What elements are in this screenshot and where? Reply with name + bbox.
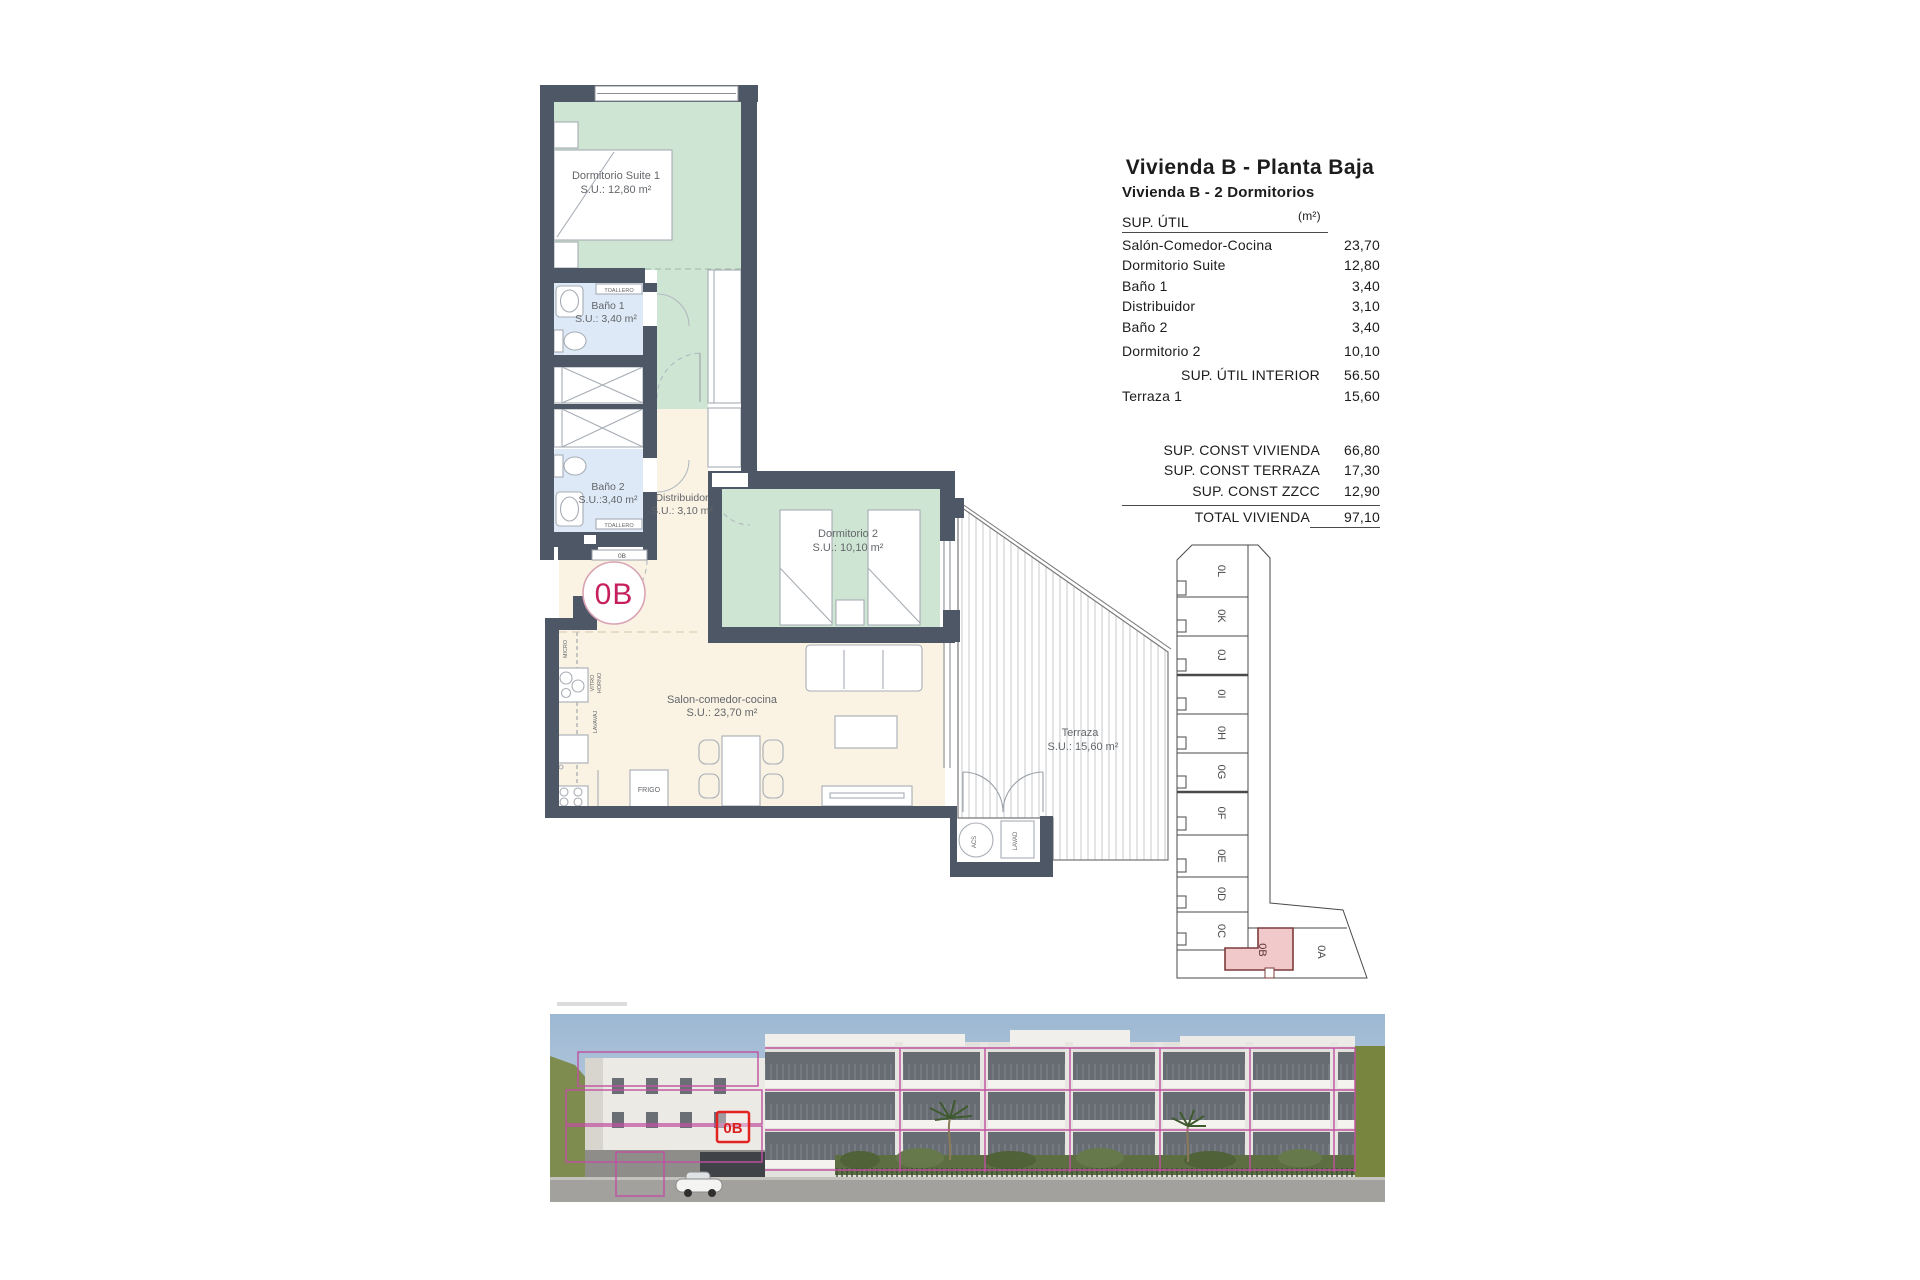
sofa: [806, 645, 922, 691]
room-area-label: S.U.: 3,10 m²: [651, 505, 713, 517]
room-label: Terraza: [1062, 727, 1100, 739]
table-row: Dormitorio Suite 12,80: [1122, 257, 1380, 277]
closet: [708, 270, 741, 403]
door-gap: [643, 292, 657, 326]
row-label: Dormitorio 2: [1122, 343, 1201, 359]
wall: [540, 85, 554, 560]
coffee-table: [835, 716, 897, 748]
row-value: 17,30: [1320, 462, 1380, 478]
page-subtitle: Vivienda B - 2 Dormitorios: [1122, 184, 1384, 201]
render-roof-step: [1180, 1036, 1355, 1046]
useful-area-table: SUP. ÚTIL (m²) Salón-Comedor-Cocina 23,7…: [1122, 214, 1380, 408]
table-row: Distribuidor 3,10: [1122, 298, 1380, 318]
room-label: Baño 2: [591, 481, 624, 493]
table-row: Dormitorio 2 10,10: [1122, 343, 1380, 363]
fixture-label: VITRO: [590, 674, 596, 692]
row-label: TOTAL VIVIENDA: [1195, 509, 1310, 525]
living-room-mid: [657, 545, 708, 806]
keyplan-unit-label: 0H: [1215, 726, 1227, 740]
row-label: SUP. CONST TERRAZA: [1164, 462, 1320, 478]
table-header-unit: (m²): [1298, 209, 1321, 223]
closet: [708, 408, 741, 467]
render-curb: [550, 1177, 1385, 1180]
row-value: 97,10: [1310, 509, 1380, 528]
wall: [540, 404, 657, 409]
room-area-label: S.U.: 23,70 m²: [687, 707, 758, 719]
plan-sheet: 0B 0B Dormitorio Suite 1 S.U.: 12,80 m² …: [0, 0, 1920, 1280]
entry-door-tag: 0B: [618, 553, 626, 560]
fixture-label: FRIGO: [638, 787, 661, 794]
keyplan-unit-label: 0C: [1215, 924, 1227, 938]
render-roof-step: [765, 1034, 965, 1046]
wall: [708, 627, 955, 643]
row-value: 3,10: [1320, 298, 1380, 314]
wall: [540, 268, 645, 283]
row-value: 12,80: [1320, 257, 1380, 273]
render-hill-right: [1352, 1046, 1385, 1186]
nightstand: [554, 242, 578, 268]
keyplan-unit-label: 0I: [1215, 689, 1227, 698]
kitchen-cabinet: [556, 735, 588, 763]
door-gap: [712, 473, 748, 487]
keyplan-unit-label-0b: 0B: [1256, 943, 1268, 956]
toilet-bowl: [564, 457, 586, 475]
row-value: 23,70: [1320, 237, 1380, 253]
table-row: Salón-Comedor-Cocina 23,70: [1122, 237, 1380, 257]
keyplan-unit-label: 0E: [1215, 849, 1227, 862]
table-row-interior-total: SUP. ÚTIL INTERIOR 56.50: [1122, 367, 1380, 387]
nightstand: [554, 122, 578, 148]
toilet-tank: [554, 330, 563, 352]
scale-bar: [557, 1002, 627, 1006]
render-street: [550, 1180, 1385, 1202]
floor-plan-canvas: 0B 0B Dormitorio Suite 1 S.U.: 12,80 m² …: [0, 0, 1920, 1280]
terrace-hatch: [958, 505, 1168, 860]
nightstand: [836, 600, 864, 625]
room-area-label: S.U.:3,40 m²: [579, 494, 638, 506]
page-title: Vivienda B - Planta Baja: [1110, 156, 1390, 180]
table-row: SUP. CONST ZZCC 12,90: [1122, 483, 1380, 503]
table-header: SUP. ÚTIL (m²): [1122, 214, 1328, 233]
keyplan-unit-label-0a: 0A: [1315, 945, 1327, 959]
room-label: Dormitorio 2: [818, 528, 878, 540]
row-label: Salón-Comedor-Cocina: [1122, 237, 1272, 253]
room-area-label: S.U.: 15,60 m²: [1048, 741, 1119, 753]
row-value: 12,90: [1320, 483, 1380, 499]
table-row-grand-total: TOTAL VIVIENDA 97,10: [1122, 505, 1380, 529]
room-area-label: S.U.: 10,10 m²: [813, 542, 884, 554]
table-row: SUP. CONST VIVIENDA 66,80: [1122, 442, 1380, 462]
tv-slot: [830, 793, 904, 798]
keyplan-0b-door: [1265, 968, 1274, 978]
hall-room: [657, 409, 708, 545]
toilet-tank: [554, 455, 563, 477]
room-label: Distribuidor: [655, 492, 709, 504]
keyplan-unit-label: 0D: [1215, 887, 1227, 901]
table-header-label: SUP. ÚTIL: [1122, 214, 1189, 230]
fixture-label: HORNO: [597, 672, 603, 693]
fixture-label: TOALLERO: [604, 523, 634, 529]
room-label: Baño 1: [591, 300, 624, 312]
fixture-label: MICRO: [563, 639, 569, 658]
keyplan-unit-label: 0K: [1215, 609, 1227, 623]
wall: [943, 610, 960, 642]
door-gap: [643, 458, 657, 492]
constructed-area-table: SUP. CONST VIVIENDA 66,80 SUP. CONST TER…: [1122, 442, 1380, 530]
table-row: Baño 1 3,40: [1122, 278, 1380, 298]
row-label: Distribuidor: [1122, 298, 1195, 314]
room-area-label: S.U.: 3,40 m²: [575, 313, 637, 325]
row-value: 10,10: [1320, 343, 1380, 359]
wall: [741, 85, 757, 475]
unit-badge-label: 0B: [595, 578, 634, 611]
table-row: Terraza 1 15,60: [1122, 388, 1380, 408]
row-label: SUP. ÚTIL INTERIOR: [1181, 367, 1320, 383]
fixture-label: ACS: [972, 836, 978, 848]
wall: [545, 618, 559, 818]
keyplan-outline: [1177, 545, 1367, 978]
row-label: Baño 2: [1122, 319, 1168, 335]
row-value: 15,60: [1320, 388, 1380, 404]
row-label: SUP. CONST ZZCC: [1192, 483, 1320, 499]
wall: [950, 862, 1053, 877]
table-row: Baño 2 3,40: [1122, 319, 1380, 339]
row-label: Baño 1: [1122, 278, 1168, 294]
wall: [948, 498, 964, 518]
key-plan: [1177, 545, 1367, 978]
room-area-label: S.U.: 12,80 m²: [581, 184, 652, 196]
row-label: Terraza 1: [1122, 388, 1182, 404]
row-value: 3,40: [1320, 319, 1380, 335]
fixture-label: LAVAVAJ: [593, 710, 599, 733]
keyplan-unit-label: 0J: [1215, 649, 1227, 661]
row-label: Dormitorio Suite: [1122, 257, 1226, 273]
wall: [1040, 816, 1053, 877]
toilet-bowl: [564, 332, 586, 350]
row-value: 3,40: [1320, 278, 1380, 294]
row-value: 56.50: [1320, 367, 1380, 383]
wall: [540, 532, 657, 547]
keyplan-unit-label: 0L: [1215, 565, 1227, 577]
door-gap: [584, 535, 596, 544]
building-render: 0B: [550, 1014, 1385, 1202]
room-label: Salon-comedor-cocina: [667, 694, 778, 706]
wall: [540, 355, 657, 367]
render-balcony-bands: [765, 1052, 1355, 1168]
keyplan-unit-label: 0F: [1215, 807, 1227, 820]
keyplan-unit-label: 0G: [1215, 765, 1227, 780]
wall: [545, 806, 957, 818]
row-value: 66,80: [1320, 442, 1380, 458]
fixture-label: LAVAD: [1013, 831, 1019, 850]
render-0b-badge-label: 0B: [723, 1120, 742, 1137]
table-row: SUP. CONST TERRAZA 17,30: [1122, 462, 1380, 482]
fixture-label: TOALLERO: [604, 288, 634, 294]
room-label: Dormitorio Suite 1: [572, 170, 660, 182]
dining-table: [722, 736, 760, 806]
wall: [950, 812, 957, 872]
row-label: SUP. CONST VIVIENDA: [1163, 442, 1320, 458]
